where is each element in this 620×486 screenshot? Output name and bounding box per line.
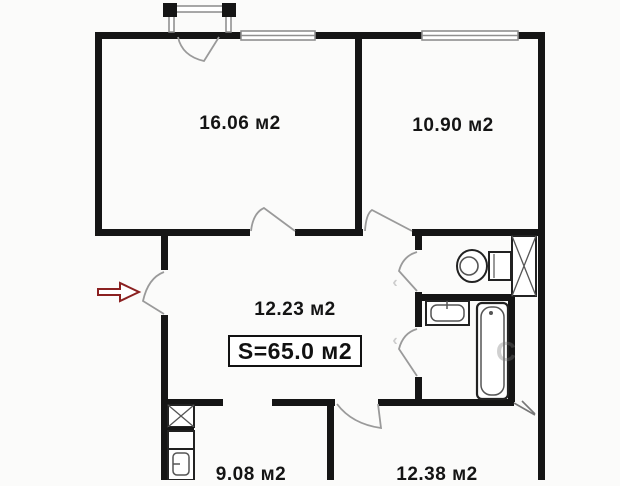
wall-top-rooms-divider [355,32,362,236]
wall-hall-left-upper [161,229,168,270]
area-label-room-top-left: 16.06 м2 [199,113,280,135]
area-label-hallway: 12.23 м2 [254,299,335,321]
floor-plan-page: { "plan_type": "apartment-floor-plan", "… [0,0,620,480]
floor-plan-drawing [0,0,620,480]
wall-left-upper [95,32,102,236]
door-room-top-right [365,210,412,231]
area-label-room-top-right: 10.90 м2 [412,115,493,137]
area-label-room-bottom-right: 12.38 м2 [396,464,477,486]
total-area-box: S=65.0 м2 [228,335,362,367]
wall-mid-horiz-b [295,229,363,236]
wall-hall-bottom-b [272,399,335,406]
wall-mid-horiz-c [412,229,543,236]
entrance-arrow [98,283,139,301]
bathtub-icon [477,303,508,399]
window-room-top-right [422,31,518,40]
balcony-door-swing [178,37,219,61]
kitchen-sink-icon [168,449,194,480]
door-room-top-left [251,208,295,231]
wall-wc-left-a [415,236,422,250]
wall-wc-bath-divider [415,294,514,301]
wall-hall-left-lower [161,315,168,480]
wash-sink-icon [426,301,469,325]
kitchen-counter [168,431,194,449]
door-entrance [143,272,164,314]
balcony-post-left [163,3,177,17]
wall-bottom-rooms-divider [327,399,334,480]
vent-shaft-kitchen [168,405,194,431]
toilet-icon [457,250,511,282]
kitchen-units [168,431,194,480]
door-bathroom [399,329,417,376]
wall-mid-horiz-a [95,229,250,236]
vent-shaft-wc [512,236,536,296]
total-area-label: S=65.0 м2 [238,338,352,365]
door-room-bottom-right [337,404,381,428]
wall-right [538,32,545,480]
area-label-room-bottom-left: 9.08 м2 [216,464,286,486]
window-room-top-left [241,31,315,40]
balcony-post-right [222,3,236,17]
door-closet-strip [514,401,535,415]
door-wc [399,252,417,291]
